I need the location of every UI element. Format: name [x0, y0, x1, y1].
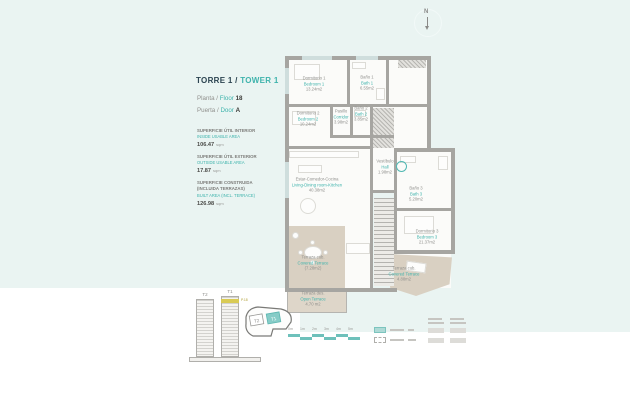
wall-living-core: [370, 148, 373, 292]
floor-plan-sheet: N TORRE 1 / TOWER 1 Planta / Floor 18 Pu…: [0, 0, 630, 401]
surface-built: SUPERFICIE CONSTRUIDA (INCLUIDA TERRAZAS…: [197, 180, 275, 206]
surface-exterior: SUPERFICIE ÚTIL EXTERIOR OUTSIDE USABLE …: [197, 154, 275, 174]
wall-wing-right: [451, 148, 455, 254]
wall-bed1-bath1: [347, 58, 350, 104]
bath1-shower: [376, 88, 385, 100]
wall-hall-bottom: [373, 190, 394, 193]
unit-title: TORRE 1 / TOWER 1: [196, 76, 279, 85]
bath3-shower: [438, 156, 448, 170]
room-label-bedroom3: Dormitorio 3Bedroom 321.37m2: [416, 228, 439, 245]
elevator-core-hatch: [373, 108, 394, 148]
torre-label: TORRE 1 /: [196, 76, 238, 85]
dining-table: [300, 198, 316, 214]
room-label-bath2: Baño 2Bath 23.85m2: [354, 105, 368, 122]
compass-needle-tip-icon: [425, 26, 429, 30]
tower-t2-elevation: [196, 299, 214, 357]
site-t2-block: T2: [249, 314, 264, 326]
terrace-chair: [310, 240, 315, 245]
surface-summary: SUPERFICIE ÚTIL INTERIOR INSIDE USABLE A…: [197, 128, 275, 213]
floor-label: Floor: [220, 95, 234, 102]
window: [302, 56, 332, 60]
room-label-bedroom2: Dormitorio 2Bedroom 210.24m2: [297, 110, 320, 127]
surface-interior: SUPERFICIE ÚTIL INTERIOR INSIDE USABLE A…: [197, 128, 275, 148]
room-label-bedroom1: Dormitorio 1Bedroom 113.24m2: [303, 75, 326, 92]
room-label-terrace-right: Terraza cub.Covered Terrace4.88m2: [389, 265, 420, 282]
floor-line: Planta / Floor 18: [197, 95, 242, 102]
tower-t1-elevation: [221, 296, 239, 357]
wall-corridor-bath2: [350, 107, 353, 138]
highlighted-floor-band: [221, 299, 239, 303]
room-label-bath1: Baño 1Bath 16.55m2: [360, 74, 374, 91]
wall-bath1-entry: [386, 58, 389, 104]
wall-corridor-bottom: [330, 135, 394, 138]
floor-number: 18: [236, 95, 243, 102]
legend: [374, 318, 474, 348]
window: [356, 56, 378, 60]
room-label-living: Estar-Comedor-CocinaLiving-Dining room-K…: [292, 176, 342, 193]
room-label-open-terrace: Terraza des.Open Terrace4.70 m2: [300, 290, 325, 307]
room-label-bath3: Baño 3Bath 35.20m2: [409, 185, 423, 202]
room-label-terrace-left: Terraza cub.Covered Terrace(7.28m2): [298, 254, 329, 271]
door-line: Puerta / Door A: [197, 107, 240, 114]
wall-bed2-living: [287, 146, 373, 149]
kitchen-counter: [289, 151, 359, 158]
compass-north-label: N: [424, 9, 428, 15]
site-t1-block: T1: [266, 312, 281, 324]
hall-marker-icon: [396, 161, 407, 172]
scale-bar: 0m 1m 2m 3m 4m 5m: [288, 327, 364, 343]
plant: [292, 232, 299, 239]
wall-wing-top: [394, 148, 455, 152]
compass: N: [413, 3, 443, 37]
door-label: Door: [220, 107, 233, 114]
room-label-hall: VestíbuloHall1.98m2: [376, 158, 393, 175]
puerta-label: Puerta: [197, 107, 215, 114]
window: [285, 68, 289, 94]
wall-bath2-core: [370, 107, 373, 150]
wall-bath3-bed3: [397, 208, 451, 211]
window: [285, 162, 289, 198]
compass-needle-icon: [427, 17, 428, 26]
tower-t2-label: T2: [196, 292, 214, 297]
wall-core-bottom: [373, 288, 397, 292]
tower-base-slab: [189, 357, 261, 362]
wall-living-bottom: [285, 288, 375, 292]
room-label-corridor: PasilloCorridor3.98m2: [333, 108, 348, 125]
tower-t1-label: T1: [221, 289, 239, 294]
kitchen-island: [298, 165, 322, 173]
tower-label: TOWER 1: [240, 76, 278, 85]
bath1-fixture: [352, 62, 366, 69]
legend-swatch-exterior: [374, 327, 386, 333]
wall-bedroom3-bottom: [394, 250, 455, 254]
sofa: [346, 243, 370, 254]
door-letter: A: [236, 107, 240, 114]
planta-label: Planta: [197, 95, 215, 102]
legend-swatch-interior: [374, 337, 386, 343]
